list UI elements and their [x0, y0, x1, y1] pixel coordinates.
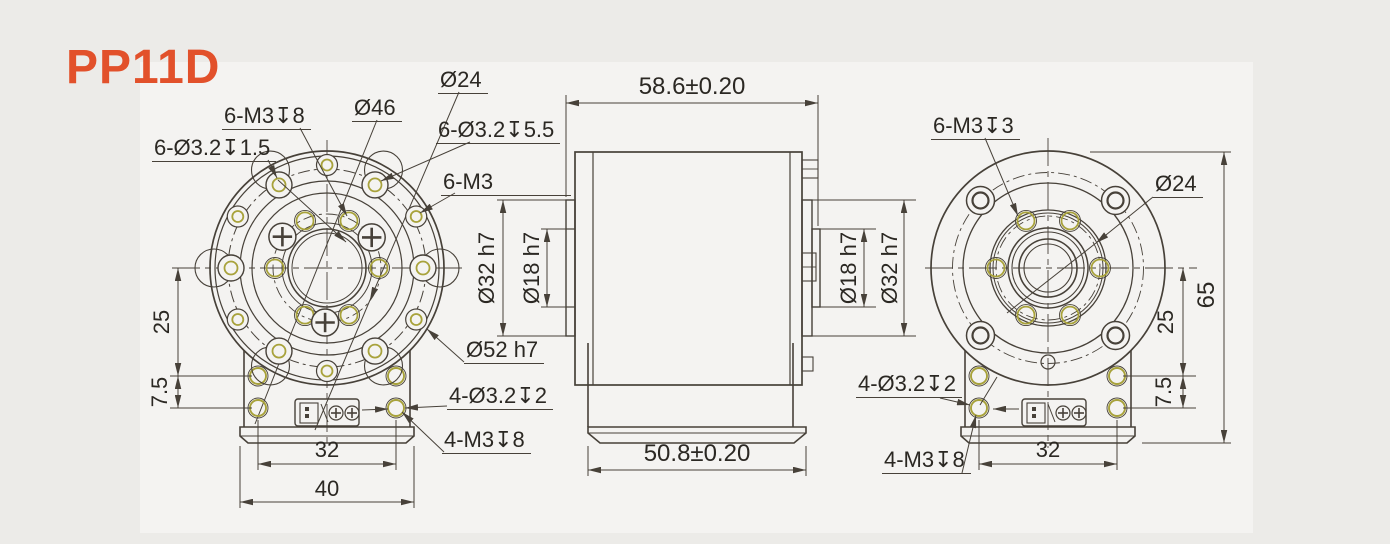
- rear-dim-hole-pitch-v: 7.5: [1152, 377, 1176, 408]
- rear-label-inner-bc-dia: Ø24: [1153, 172, 1203, 198]
- part-number-title: PP11D: [66, 40, 220, 95]
- side-dim-left-bore: Ø18 h7: [520, 232, 544, 304]
- side-dim-overall-depth: 58.6±0.20: [639, 74, 746, 100]
- front-label-cbore-shallow: 6-Ø3.2↧1.5: [152, 136, 276, 162]
- front-label-inner-bc-dia: Ø24: [438, 68, 488, 94]
- rear-dim-overall-height: 65: [1194, 282, 1220, 309]
- side-dim-right-pilot: Ø32 h7: [878, 232, 902, 304]
- front-dim-hole-pitch-h: 32: [315, 438, 339, 462]
- front-dim-center-to-hole: 25: [150, 310, 174, 334]
- side-dim-base-depth: 50.8±0.20: [644, 441, 751, 467]
- front-label-bolt-circle-dia: Ø46: [352, 96, 402, 122]
- front-label-base-tapped: 4-M3↧8: [442, 428, 531, 454]
- front-label-tapped-bc: 6-M3↧8: [222, 104, 311, 130]
- front-label-thread-outer: 6-M3: [441, 170, 571, 196]
- front-label-cbore-deep: 6-Ø3.2↧5.5: [436, 118, 560, 144]
- front-dim-hole-pitch-v: 7.5: [148, 377, 172, 408]
- rear-label-base-cbore: 4-Ø3.2↧2: [856, 372, 962, 398]
- rear-label-tapped-bc: 6-M3↧3: [931, 114, 1020, 140]
- side-dim-right-bore: Ø18 h7: [837, 232, 861, 304]
- front-dimensions: [170, 268, 414, 508]
- front-label-base-cbore: 4-Ø3.2↧2: [447, 384, 553, 410]
- front-label-pilot-dia: Ø52 h7: [464, 338, 544, 364]
- drawing-sheet: PP11D 6-M3↧8 6-Ø3.2↧1.5 Ø46 Ø24 6-Ø3.2↧5…: [0, 0, 1390, 544]
- front-dim-base-width: 40: [315, 477, 339, 501]
- rear-label-base-tapped: 4-M3↧8: [882, 448, 971, 474]
- rear-connector: [1022, 399, 1086, 426]
- rear-dim-center-to-hole: 25: [1154, 310, 1178, 334]
- side-dim-left-pilot: Ø32 h7: [475, 232, 499, 304]
- rear-dim-hole-pitch-h: 32: [1036, 438, 1060, 462]
